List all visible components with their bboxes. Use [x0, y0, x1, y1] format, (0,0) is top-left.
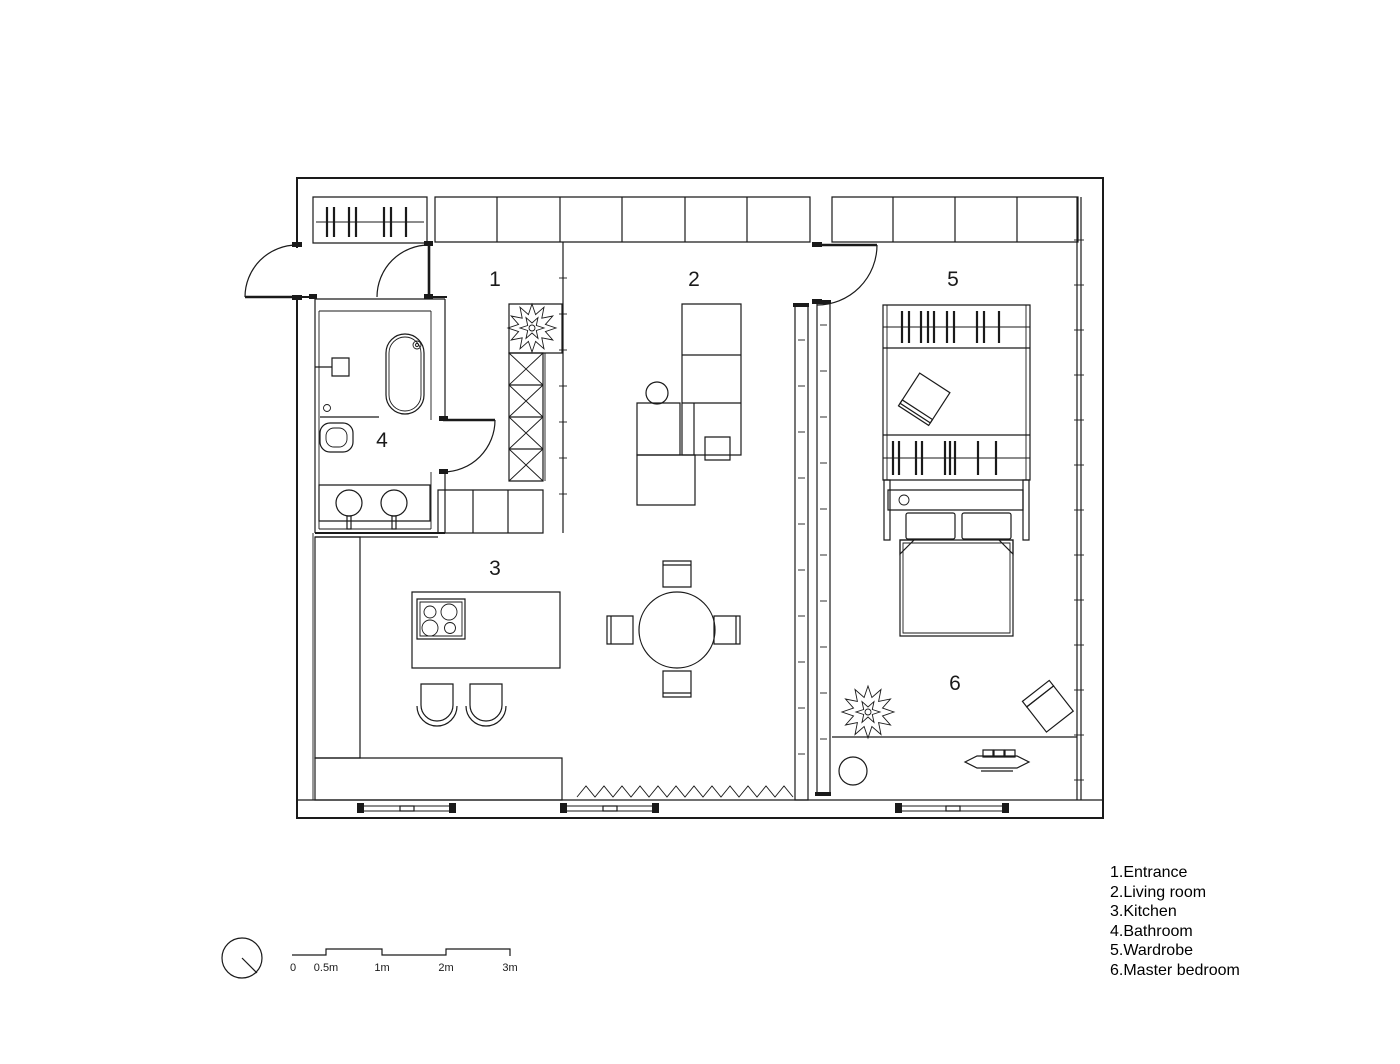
plant-box-hall [508, 304, 562, 353]
room-label-kitchen: 3 [489, 557, 501, 580]
entry-closet [313, 197, 427, 243]
scale-label-2m: 2m [438, 962, 453, 974]
hall-lower-cabinets [438, 490, 543, 533]
bedroom-stool [839, 757, 867, 785]
floor-plan-canvas: 1 2 3 4 5 6 0 0.5m 1m 2m 3m 1.Entrance 2… [0, 0, 1400, 1064]
curtain-zigzag [577, 786, 793, 797]
kitchen-island [412, 592, 560, 668]
room-label-bedroom: 6 [949, 672, 961, 695]
bedroom-chair [1022, 680, 1073, 732]
dining-table [607, 561, 740, 697]
room-label-entrance: 1 [489, 268, 501, 291]
vestibule-door [377, 241, 433, 299]
north-indicator [222, 938, 262, 978]
bathroom-door [439, 416, 495, 474]
legend-item-entrance: 1.Entrance [1110, 864, 1187, 881]
bathroom-walls [315, 299, 445, 533]
vanity-sinks [319, 485, 431, 529]
scale-label-05m: 0.5m [314, 962, 338, 974]
top-cabinets-right [832, 197, 1078, 242]
kitchen-stools [417, 684, 506, 726]
window-living [560, 803, 659, 813]
bathtub [386, 334, 424, 414]
wardrobe-unit [883, 305, 1030, 480]
bedroom-plant [842, 686, 894, 738]
legend-item-wardrobe: 5.Wardrobe [1110, 942, 1193, 959]
window-bedroom [895, 803, 1009, 813]
wardrobe-room-door [812, 242, 877, 305]
legend-item-bedroom: 6.Master bedroom [1110, 962, 1240, 979]
x-shelf-cabinet [509, 353, 545, 481]
legend-item-living: 2.Living room [1110, 884, 1206, 901]
scale-bar: 0 0.5m 1m 2m 3m [290, 949, 518, 974]
top-cabinets-left [435, 197, 810, 242]
window-kitchen [357, 803, 456, 813]
glass-partition-right [815, 300, 831, 796]
scale-label-0: 0 [290, 962, 296, 974]
bed [884, 480, 1029, 636]
legend-item-bathroom: 4.Bathroom [1110, 923, 1193, 940]
room-label-living: 2 [688, 268, 700, 291]
toilet [320, 405, 379, 453]
glass-partition-left [793, 303, 809, 800]
entrance-door [245, 242, 302, 300]
floor-lamp [646, 382, 668, 404]
room-legend: 1.Entrance 2.Living room 3.Kitchen 4.Bat… [1110, 864, 1240, 979]
floor-plan-page: 1 2 3 4 5 6 0 0.5m 1m 2m 3m 1.Entrance 2… [0, 0, 1400, 1064]
kitchen-counters [313, 533, 562, 800]
room-label-wardrobe: 5 [947, 268, 959, 291]
scale-label-3m: 3m [502, 962, 517, 974]
side-table [705, 437, 730, 460]
glass-facade-right [1074, 197, 1084, 800]
scale-label-1m: 1m [374, 962, 389, 974]
wall-sink [315, 358, 349, 376]
wardrobe-chair [898, 373, 949, 425]
room-label-bathroom: 4 [376, 429, 388, 452]
legend-item-kitchen: 3.Kitchen [1110, 903, 1177, 920]
hall-living-wall [559, 242, 567, 533]
bedroom-bench [965, 750, 1029, 771]
sofa [637, 304, 741, 505]
